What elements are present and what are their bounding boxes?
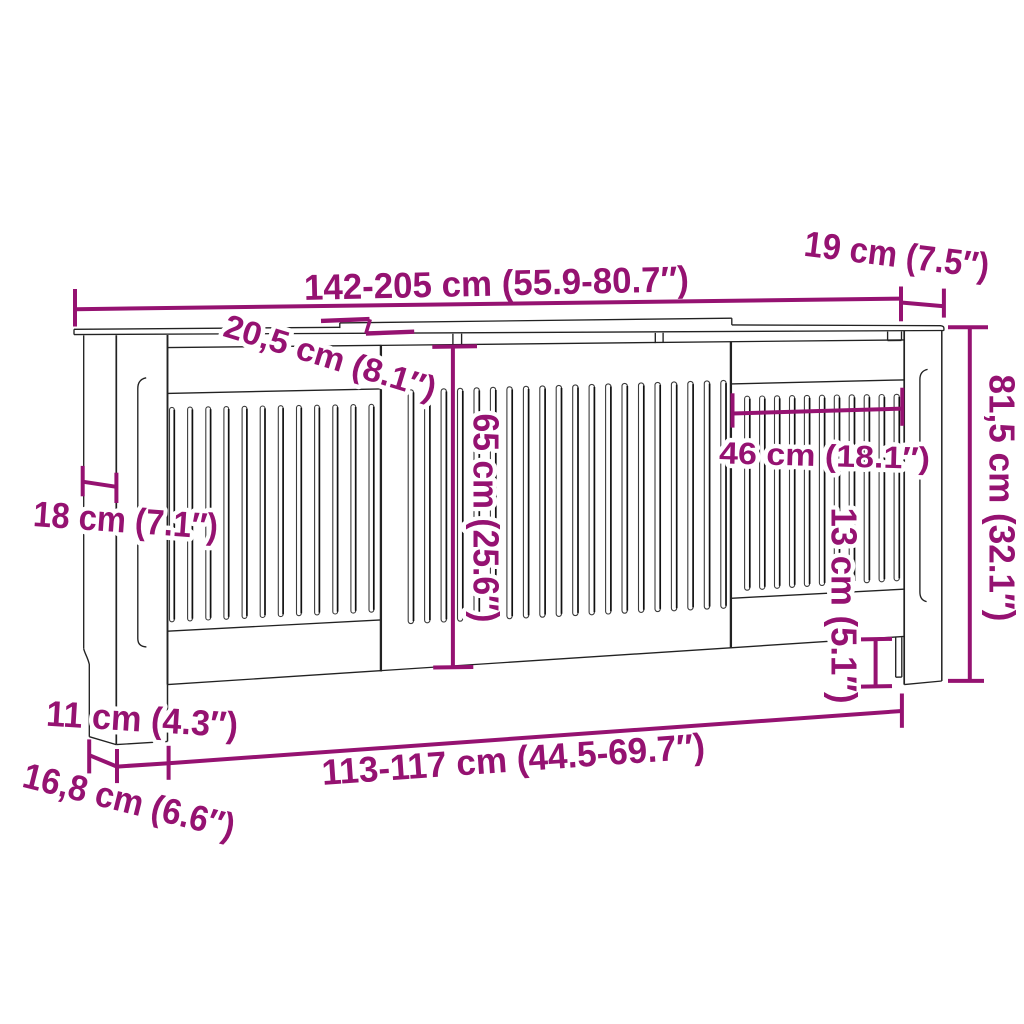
svg-text:65 cm (25.6″): 65 cm (25.6″)	[465, 414, 506, 623]
svg-text:81,5 cm (32.1″): 81,5 cm (32.1″)	[981, 375, 1022, 622]
svg-text:46 cm (18.1″): 46 cm (18.1″)	[719, 435, 931, 476]
svg-text:13 cm (5.1″): 13 cm (5.1″)	[823, 508, 864, 704]
